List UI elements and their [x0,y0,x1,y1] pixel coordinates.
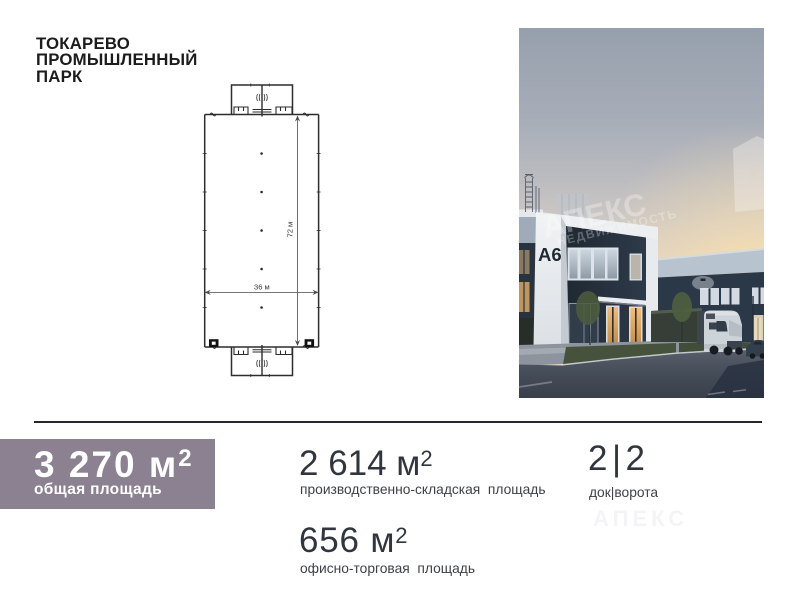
svg-text:72 м: 72 м [286,222,295,238]
svg-text:36 м: 36 м [254,282,270,291]
